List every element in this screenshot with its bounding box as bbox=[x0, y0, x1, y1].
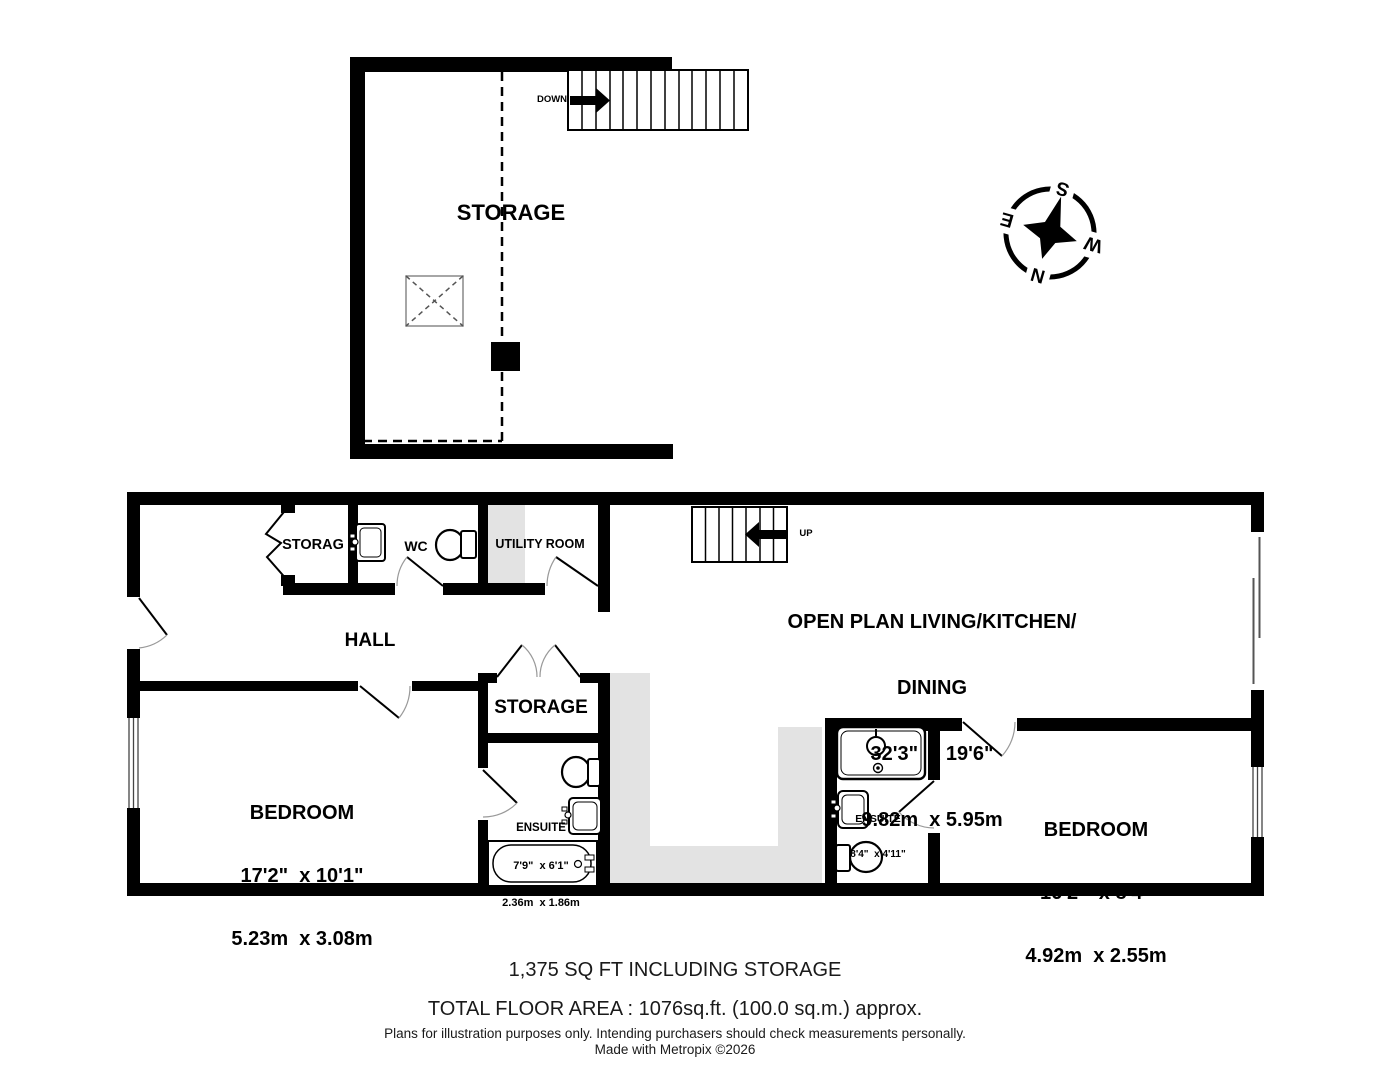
door-storage-double bbox=[497, 645, 580, 677]
floorplan-drawing: N S E W bbox=[0, 0, 1389, 1080]
hall-label: HALL bbox=[345, 631, 396, 650]
ensuite-left-size-metric: 2.36m x 1.86m bbox=[502, 897, 580, 910]
open-plan-title-1: OPEN PLAN LIVING/KITCHEN/ bbox=[788, 611, 1077, 633]
closet-label: STORAG bbox=[282, 538, 344, 553]
compass-rose: N S E W bbox=[979, 162, 1120, 303]
door-bedroom-left bbox=[360, 686, 410, 718]
ensuite-left-title: ENSUITE bbox=[502, 822, 580, 835]
toilet-icon-wc bbox=[436, 530, 476, 560]
open-plan-size-imperial: 32'3" x 19'6" bbox=[788, 743, 1077, 765]
door-wc bbox=[397, 557, 443, 586]
wc-label: WC bbox=[404, 539, 427, 553]
sink-icon-wc bbox=[350, 524, 385, 561]
stairs-down bbox=[568, 70, 748, 130]
stairs-up-label: UP bbox=[799, 529, 812, 539]
ensuite-left-label: ENSUITE 7'9" x 6'1" 2.36m x 1.86m bbox=[502, 797, 580, 922]
loft-hatch-icon bbox=[406, 276, 463, 326]
ensuite-right-title: ENSUITE bbox=[843, 814, 914, 826]
bedroom-left-title: BEDROOM bbox=[231, 803, 372, 824]
upper-storage-label: STORAGE bbox=[457, 202, 565, 224]
bedroom-left-label: BEDROOM 17'2" x 10'1" 5.23m x 3.08m bbox=[231, 761, 372, 971]
bedroom-right-title: BEDROOM bbox=[1025, 820, 1166, 841]
footer-credit: Made with Metropix ©2026 bbox=[595, 1042, 756, 1058]
window-left bbox=[127, 718, 140, 808]
stairs-down-label: DOWN bbox=[537, 95, 567, 105]
bedroom-right-label: BEDROOM 16'2" x 8'4" 4.92m x 2.55m bbox=[1025, 778, 1166, 988]
footer-disclaimer: Plans for illustration purposes only. In… bbox=[384, 1026, 966, 1042]
sliding-door bbox=[1254, 537, 1260, 684]
storage-label: STORAGE bbox=[494, 698, 588, 717]
bedroom-left-size-metric: 5.23m x 3.08m bbox=[231, 929, 372, 950]
ensuite-right-size-imperial: 8'4" x 4'11" bbox=[843, 849, 914, 861]
floorplan-canvas: N S E W STORAGE DOWN UP STORAG WC UTILIT… bbox=[0, 0, 1389, 1080]
ensuite-right-label: ENSUITE 8'4" x 4'11" 2.55m x 1.50m bbox=[843, 791, 914, 906]
toilet-icon-ensuite-left bbox=[562, 757, 600, 787]
utility-room-label: UTILITY ROOM bbox=[495, 538, 584, 551]
window-right bbox=[1251, 767, 1264, 837]
eaves-dashed-lines bbox=[363, 72, 502, 444]
door-entrance bbox=[139, 598, 167, 648]
ensuite-left-size-imperial: 7'9" x 6'1" bbox=[502, 860, 580, 873]
door-utility bbox=[547, 557, 598, 586]
bedroom-right-size-metric: 4.92m x 2.55m bbox=[1025, 946, 1166, 967]
chimney-icon bbox=[491, 342, 520, 371]
ensuite-right-size-metric: 2.55m x 1.50m bbox=[843, 883, 914, 895]
footer-area-line: 1,375 SQ FT INCLUDING STORAGE bbox=[509, 958, 842, 982]
footer-total-area-line: TOTAL FLOOR AREA : 1076sq.ft. (100.0 sq.… bbox=[428, 997, 922, 1021]
open-plan-title-2: DINING bbox=[788, 677, 1077, 699]
bedroom-left-size-imperial: 17'2" x 10'1" bbox=[231, 866, 372, 887]
bedroom-right-size-imperial: 16'2" x 8'4" bbox=[1025, 883, 1166, 904]
stairs-up bbox=[692, 507, 787, 562]
